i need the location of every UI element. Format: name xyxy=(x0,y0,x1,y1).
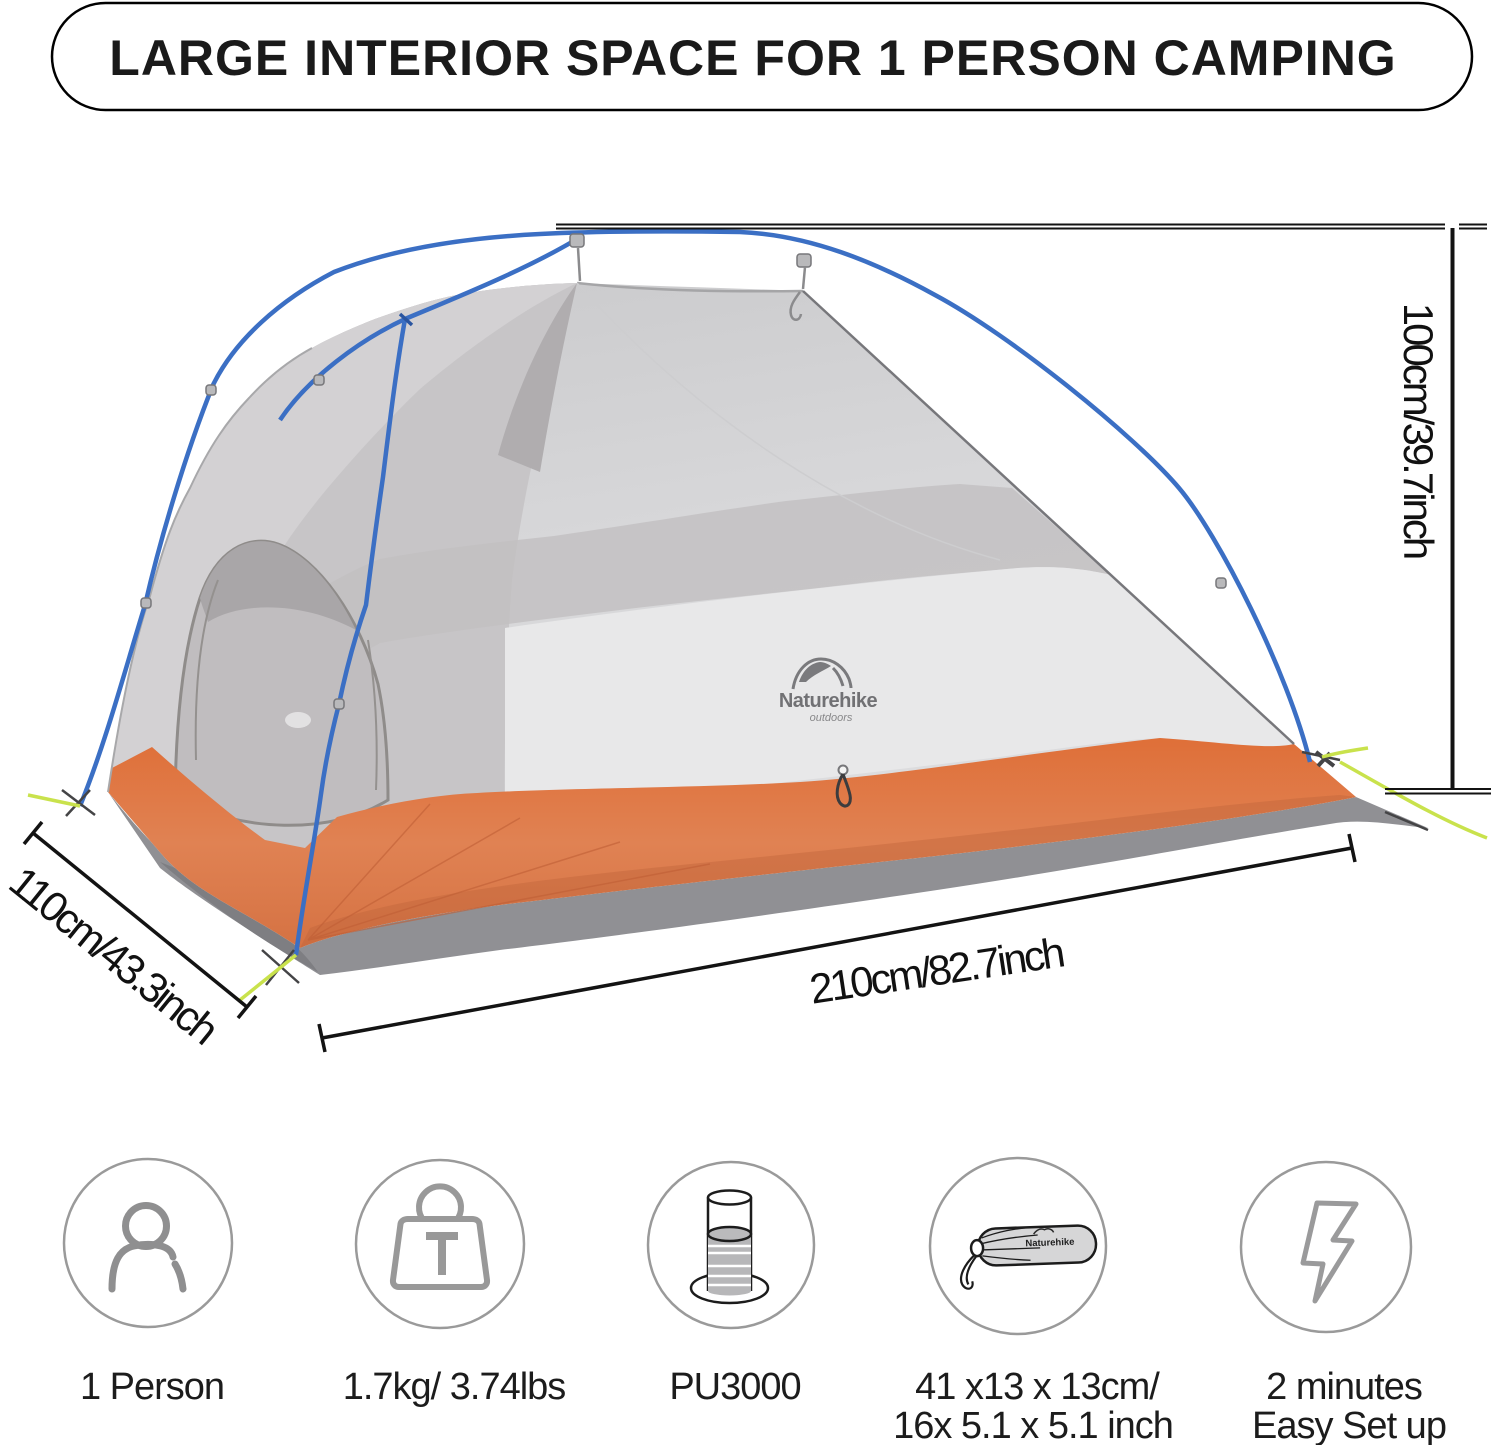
svg-text:outdoors: outdoors xyxy=(810,712,853,724)
svg-text:Naturehike: Naturehike xyxy=(779,690,878,712)
svg-text:Easy Set up: Easy Set up xyxy=(1252,1405,1446,1445)
svg-text:1.7kg/ 3.74lbs: 1.7kg/ 3.74lbs xyxy=(343,1366,566,1408)
svg-text:PU3000: PU3000 xyxy=(669,1366,800,1408)
svg-text:16x 5.1 x 5.1 inch: 16x 5.1 x 5.1 inch xyxy=(893,1405,1173,1445)
svg-text:41 x13 x 13cm/: 41 x13 x 13cm/ xyxy=(915,1366,1160,1408)
svg-text:1 Person: 1 Person xyxy=(80,1366,224,1408)
svg-text:LARGE INTERIOR SPACE FOR 1 PER: LARGE INTERIOR SPACE FOR 1 PERSON CAMPIN… xyxy=(109,30,1396,86)
svg-text:2 minutes: 2 minutes xyxy=(1266,1366,1422,1408)
svg-text:100cm/39.7inch: 100cm/39.7inch xyxy=(1395,303,1442,558)
svg-text:Naturehike: Naturehike xyxy=(1025,1237,1074,1250)
